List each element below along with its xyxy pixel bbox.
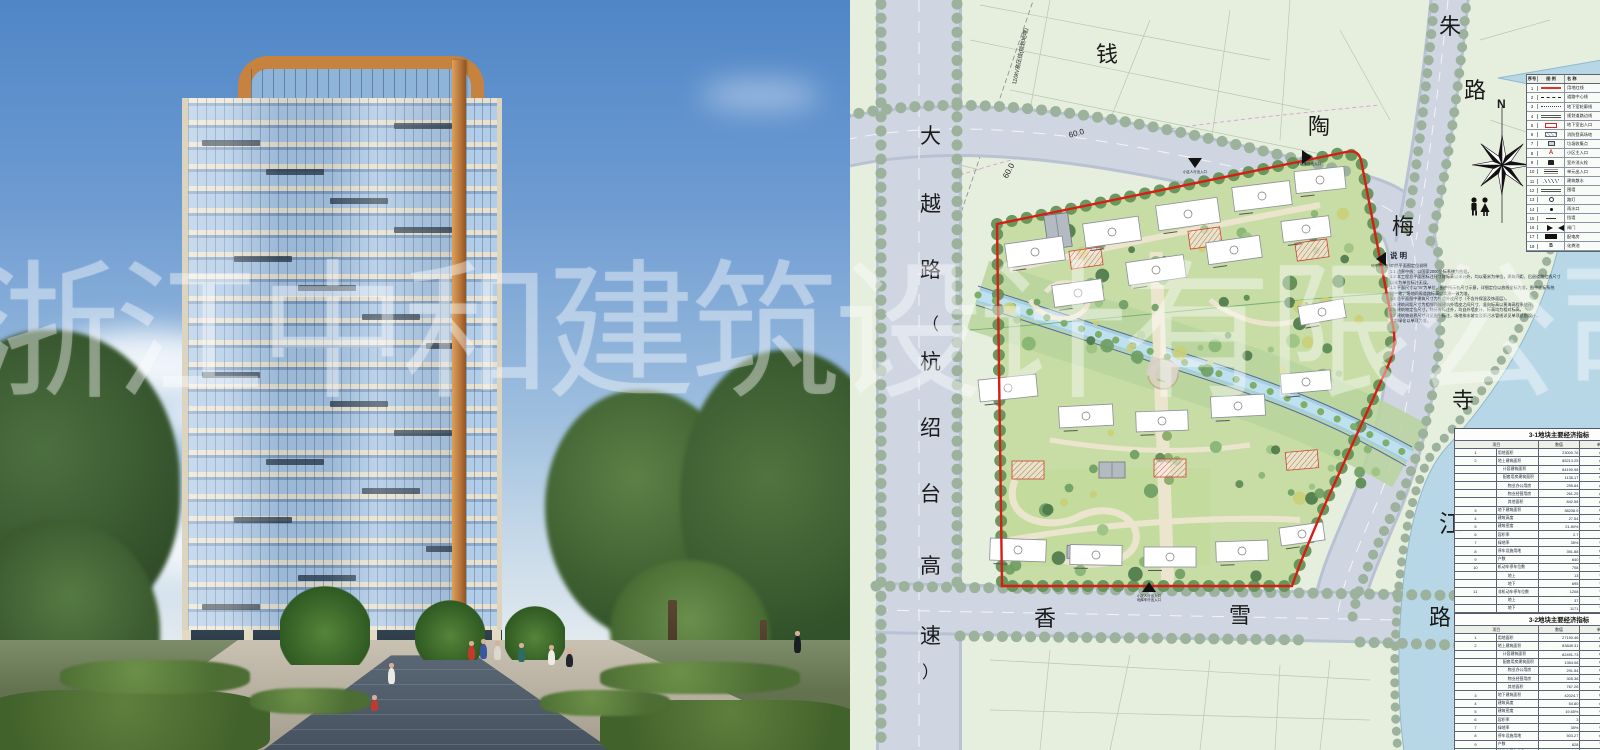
- legend-row-no: 4: [1527, 114, 1538, 119]
- econ-cell: 配套用房建筑面积: [1496, 658, 1538, 666]
- tree-dot: [1198, 345, 1204, 351]
- econ-table: 项目数值单位备注1用地面积23000.76㎡2地上建筑面积85213.25㎡其中…: [1454, 440, 1600, 613]
- econ-cell: 37: [1538, 596, 1580, 604]
- econ-row: 11非机动车停车位数1208个: [1455, 588, 1600, 596]
- tree-dot: [1130, 450, 1140, 460]
- econ-table-title: 3-1地块主要经济指标: [1454, 428, 1600, 440]
- note-line: 二期绿化以单项为准。: [1390, 318, 1600, 324]
- econ-row: 6容积率2.7: [1455, 531, 1600, 539]
- econ-cell: 建筑高度: [1496, 699, 1538, 707]
- tree-dot: [1060, 498, 1068, 506]
- legend-row-no: 7: [1527, 141, 1538, 146]
- econ-cell: 个: [1580, 580, 1600, 588]
- econ-cell: 3: [1455, 506, 1497, 514]
- tree-dot: [1337, 208, 1349, 220]
- econ-cell: 3: [1538, 716, 1580, 724]
- econ-cell: 停车设施用地: [1496, 547, 1538, 555]
- legend-row-no: 2: [1527, 95, 1538, 100]
- legend-header: 序号 图 例 名 称: [1527, 75, 1600, 84]
- econ-cell: [1455, 572, 1497, 580]
- econ-cell: 2: [1455, 642, 1497, 650]
- balcony-accent: [394, 227, 452, 233]
- econ-cell: 842.58: [1538, 498, 1580, 506]
- legend-symbol-glyph: [1541, 106, 1561, 107]
- econ-row: 物业经营用房261.25㎡物业经营用房不少于千分: [1455, 490, 1600, 498]
- legend-row: 13路灯: [1527, 196, 1600, 205]
- fire-lane-hatch: [1012, 461, 1044, 479]
- econ-cell: 1171: [1538, 604, 1580, 612]
- tree-dot: [1086, 336, 1095, 345]
- balcony-accent: [330, 401, 388, 407]
- legend-row-no: 16: [1527, 225, 1538, 230]
- legend-symbol-glyph: [1549, 197, 1554, 202]
- hedge: [600, 662, 800, 694]
- econ-cell: [1455, 580, 1497, 588]
- econ-row: 计容建筑面积84190.98㎡相применя配套建筑面积: [1455, 465, 1600, 473]
- screenshot-root: 大越路（杭绍台高速）钱陶梅寺朱路香雪路江60.060.0110kV高压线(规划地…: [0, 0, 1600, 750]
- person: [468, 646, 475, 660]
- econ-cell: 个: [1580, 572, 1600, 580]
- legend-row: 16闸门: [1527, 223, 1600, 232]
- econ-cell: ㎡: [1580, 449, 1600, 457]
- econ-cell: [1455, 490, 1497, 498]
- legend-row: 8A小区主入口: [1527, 149, 1600, 158]
- fire-lane-hatch: [1285, 450, 1318, 471]
- legend-row: 15挡墙: [1527, 214, 1600, 223]
- econ-cell: ㎡: [1580, 658, 1600, 666]
- tree-dot: [1201, 364, 1214, 377]
- econ-cell: [1455, 481, 1497, 489]
- legend-row-no: 13: [1527, 197, 1538, 202]
- econ-row: 10机动车停车位数708个: [1455, 563, 1600, 571]
- econ-cell: %: [1580, 707, 1600, 715]
- building-footprint: [1144, 547, 1196, 571]
- econ-cell: 27190.46: [1538, 634, 1580, 642]
- legend-row: 3地下室轮廓线: [1527, 103, 1600, 112]
- hedge: [540, 690, 670, 716]
- econ-cell: ㎡: [1580, 498, 1600, 506]
- fire-lane-hatch: [1154, 459, 1186, 477]
- legend-row: 11建筑散水: [1527, 177, 1600, 186]
- tree-dot: [1286, 334, 1300, 348]
- econ-cell: 其他面积: [1496, 498, 1538, 506]
- econ-cell: 个: [1580, 596, 1600, 604]
- tree-dot: [1119, 300, 1129, 310]
- econ-cell: [1580, 716, 1600, 724]
- econ-row: 2地上建筑面积83849.31㎡其中包含物业用房及开闭所等: [1455, 642, 1600, 650]
- legend-col-name: 名 称: [1565, 76, 1600, 82]
- legend-row-name: 建筑散水: [1565, 178, 1600, 184]
- legend-row-name: 小区主入口: [1565, 150, 1600, 156]
- legend-row: 12围墙: [1527, 186, 1600, 195]
- econ-row: 9户数828个: [1455, 740, 1600, 748]
- econ-cell: ㎡: [1580, 650, 1600, 658]
- legend-row-name: 地下室轮廓线: [1565, 104, 1600, 110]
- econ-cell: 1208: [1538, 588, 1580, 596]
- econ-cell: 27.54: [1538, 514, 1580, 522]
- legend-row-no: 9: [1527, 160, 1538, 165]
- econ-cell: 地下: [1496, 580, 1538, 588]
- legend-symbol-bin: [1538, 158, 1565, 166]
- econ-cell: 7: [1455, 724, 1497, 732]
- balcony-accent: [298, 575, 356, 581]
- econ-cell: 295.84: [1538, 481, 1580, 489]
- tree-dot: [1097, 524, 1108, 535]
- legend-symbol-circ: [1538, 196, 1565, 204]
- legend-row: 7垃圾收集点: [1527, 140, 1600, 149]
- tree-dot: [1344, 243, 1354, 253]
- person: [566, 654, 573, 667]
- legend-row-no: 17: [1527, 234, 1538, 239]
- person: [548, 650, 555, 665]
- tree-dot: [1175, 569, 1185, 579]
- econ-row: 物业办公用房295.84㎡物业管理用房不少于千分: [1455, 481, 1600, 489]
- econ-cell: 23000.76: [1538, 449, 1580, 457]
- econ-cell: 8: [1455, 547, 1497, 555]
- econ-cell: 非机动车停车位数: [1496, 588, 1538, 596]
- legend-row-name: 雨水口: [1565, 206, 1600, 212]
- econ-cell: 用地面积: [1496, 634, 1538, 642]
- econ-col-header: 数值: [1538, 441, 1580, 449]
- legend-symbol-hatch: [1538, 130, 1565, 138]
- econ-cell: 8: [1455, 732, 1497, 740]
- legend-symbol-zig: [1538, 177, 1565, 185]
- legend-row-no: 6: [1527, 132, 1538, 137]
- tree-dot: [1258, 472, 1265, 479]
- legend-symbol-glyph: [1541, 115, 1561, 118]
- econ-row: 物业经营用房305.38㎡物业经营用房不少于千分: [1455, 675, 1600, 683]
- tree-dot: [1209, 339, 1222, 352]
- legend-row: 6消防登高场地: [1527, 130, 1600, 139]
- legend-row-name: 垃圾收集点: [1565, 141, 1600, 147]
- tree-dot: [1225, 332, 1232, 339]
- econ-cell: [1580, 531, 1600, 539]
- tower-facade-right: [466, 98, 502, 630]
- econ-cell: 82491.73: [1538, 650, 1580, 658]
- econ-cell: 物业经营用房: [1496, 675, 1538, 683]
- lawn: [0, 690, 270, 750]
- econ-cell: 828: [1538, 740, 1580, 748]
- legend-row-name: 地下室出入口: [1565, 122, 1600, 128]
- balcony-accent: [202, 372, 260, 378]
- building-rect: [1216, 540, 1269, 562]
- econ-cell: [1455, 596, 1497, 604]
- legend-row: 18B化粪池: [1527, 242, 1600, 251]
- legend-row-no: 3: [1527, 104, 1538, 109]
- econ-cell: ㎡: [1580, 481, 1600, 489]
- planter: [1162, 431, 1172, 441]
- legend-symbol-glyph: A: [1549, 150, 1553, 156]
- legend-symbol-glyph: [1545, 123, 1557, 128]
- tree-dot: [1003, 302, 1015, 314]
- econ-cell: 708: [1538, 563, 1580, 571]
- econ-row: 物业办公用房291.54㎡物业管理用房不少于千分: [1455, 666, 1600, 674]
- fire-lane-hatch: [1069, 247, 1103, 269]
- utility-building: [1099, 462, 1125, 478]
- legend-symbol-glyph: [1546, 218, 1556, 219]
- tree-dot: [1302, 336, 1314, 348]
- tree-dot: [1108, 430, 1115, 437]
- legend-row-name: 化粪池: [1565, 243, 1600, 249]
- legend-symbol-dbl: [1538, 112, 1565, 120]
- econ-cell: 6: [1455, 716, 1497, 724]
- legend-row-name: 用地红线: [1565, 85, 1600, 91]
- tree-dot: [1144, 484, 1158, 498]
- tree-dot: [1100, 339, 1114, 353]
- legend-symbol-dashdot: [1538, 93, 1565, 101]
- building-rect: [1280, 370, 1332, 394]
- econ-row: 配套用房建筑面积1135.17㎡: [1455, 473, 1600, 481]
- econ-cell: 7: [1455, 539, 1497, 547]
- tree-dot: [1090, 491, 1097, 498]
- econ-row: 8停车设施用地503.27㎡地上建筑面积: [1455, 732, 1600, 740]
- econ-cell: [1455, 604, 1497, 612]
- tree-dot: [1334, 449, 1341, 456]
- legend-row: 10单元出入口: [1527, 168, 1600, 177]
- tree-dot: [1152, 304, 1159, 311]
- econ-cell: 695: [1538, 580, 1580, 588]
- econ-row: 5建筑密度21.80%%: [1455, 522, 1600, 530]
- legend-symbol-glyph: [1541, 97, 1561, 98]
- legend-symbol-glyph: [1548, 160, 1554, 166]
- legend-symbol-glyph: [1544, 169, 1558, 174]
- person: [794, 636, 801, 653]
- econ-cell: 1: [1455, 449, 1497, 457]
- tree-dot: [1268, 347, 1274, 353]
- econ-cell: 个: [1580, 740, 1600, 748]
- person: [480, 644, 487, 659]
- econ-cell: ㎡: [1580, 675, 1600, 683]
- econ-col-header: 单位: [1580, 441, 1600, 449]
- tree-dot: [1210, 441, 1222, 453]
- tree-dot: [1250, 570, 1261, 581]
- econ-cell: 个: [1580, 604, 1600, 612]
- balcony-accent: [394, 430, 452, 436]
- legend-symbol-glyph: A: [1538, 149, 1565, 157]
- legend-symbol-glyph: [1545, 234, 1557, 239]
- balcony-accent: [202, 140, 260, 146]
- econ-cell: 42024.7: [1538, 691, 1580, 699]
- legend-row-no: 11: [1527, 179, 1538, 184]
- tree-dot: [1244, 295, 1250, 301]
- tree-dot: [1219, 297, 1229, 307]
- econ-cell: 其他面积: [1496, 683, 1538, 691]
- econ-cell: 地下建筑面积: [1496, 691, 1538, 699]
- econ-row: 7绿地率35%%: [1455, 724, 1600, 732]
- econ-cell: 1354.08: [1538, 658, 1580, 666]
- tree-dot: [1052, 551, 1066, 565]
- econ-row: 地下695个: [1455, 580, 1600, 588]
- econ-cell: ㎡: [1580, 683, 1600, 691]
- econ-col-header: 项目: [1455, 625, 1539, 633]
- tree-dot: [1271, 445, 1280, 454]
- tree-dot: [1128, 246, 1135, 253]
- legend-row-name: 道路中心线: [1565, 94, 1600, 100]
- econ-cell: 3: [1455, 691, 1497, 699]
- econ-cell: %: [1580, 522, 1600, 530]
- econ-cell: [1455, 666, 1497, 674]
- econ-row: 1用地面积27190.46㎡: [1455, 634, 1600, 642]
- legend-symbol-steps: [1538, 168, 1565, 176]
- building-rect: [1070, 545, 1122, 566]
- tree-dot: [1131, 351, 1144, 364]
- legend-row-no: 14: [1527, 207, 1538, 212]
- legend-row-name: 挡墙: [1565, 215, 1600, 221]
- tree-dot: [1311, 210, 1318, 217]
- building-rect: [1136, 410, 1189, 432]
- legend-symbol-dbl: [1538, 186, 1565, 194]
- econ-row: 9户数640个: [1455, 555, 1600, 563]
- tree-dot: [1235, 480, 1243, 488]
- fire-lane-hatch: [1295, 239, 1329, 261]
- building-rect: [1294, 166, 1346, 193]
- tree-dot: [1328, 465, 1335, 472]
- econ-row: 其他面积842.58㎡活动室 40.35㎡ 配电房、开关房 569.07㎡ 垃圾…: [1455, 498, 1600, 506]
- legend-symbol-glyph: [1541, 189, 1561, 192]
- econ-cell: 建筑密度: [1496, 522, 1538, 530]
- econ-cell: ㎡: [1580, 490, 1600, 498]
- econ-cell: 个: [1580, 563, 1600, 571]
- econ-cell: 建筑密度: [1496, 707, 1538, 715]
- legend-row-name: 路灯: [1565, 197, 1600, 203]
- legend-symbol-box: [1538, 140, 1565, 148]
- econ-cell: 地下建筑面积: [1496, 506, 1538, 514]
- person: [388, 668, 395, 684]
- legend-row-name: 闸门: [1565, 225, 1600, 231]
- balcony-accent: [362, 488, 420, 494]
- building-rect: [990, 538, 1047, 562]
- econ-cell: ㎡: [1580, 666, 1600, 674]
- tree-dot: [1364, 445, 1372, 453]
- econ-cell: 5: [1455, 707, 1497, 715]
- legend-row: 1用地红线: [1527, 84, 1600, 93]
- econ-table-title: 3-2地块主要经济指标: [1454, 613, 1600, 625]
- econ-cell: ㎡: [1580, 691, 1600, 699]
- econ-row: 其他面积767.26㎡活动室 50.05㎡ 配电房、开关房 674.4㎡ 垃圾收…: [1455, 683, 1600, 691]
- tree-dot: [1282, 276, 1297, 291]
- econ-cell: 640: [1538, 555, 1580, 563]
- econ-cell: 建筑高度: [1496, 514, 1538, 522]
- tree-dot: [1022, 337, 1036, 351]
- econ-cell: 9: [1455, 555, 1497, 563]
- econ-cell: %: [1580, 539, 1600, 547]
- econ-cell: 4: [1455, 514, 1497, 522]
- econ-cell: 绿地率: [1496, 539, 1538, 547]
- legend-row: 2道路中心线: [1527, 93, 1600, 102]
- econ-row: 地上37个: [1455, 596, 1600, 604]
- legend-row-no: 10: [1527, 169, 1538, 174]
- econ-cell: 9: [1455, 740, 1497, 748]
- tree-dot: [1340, 255, 1349, 264]
- tree-dot: [1315, 488, 1325, 498]
- econ-cell: 配套用房建筑面积: [1496, 473, 1538, 481]
- legend-symbol-glyph: [1541, 87, 1561, 89]
- balcony-accent: [394, 123, 452, 129]
- econ-cell: 391.88: [1538, 547, 1580, 555]
- balcony-accent: [298, 285, 356, 291]
- tree-dot: [1093, 320, 1099, 326]
- econ-row: 8停车设施用地391.88㎡地上建筑面积: [1455, 547, 1600, 555]
- econ-cell: 计容建筑面积: [1496, 465, 1538, 473]
- econ-cell: [1455, 650, 1497, 658]
- balcony-accent: [202, 604, 260, 610]
- econ-cell: ㎡: [1580, 506, 1600, 514]
- person: [494, 646, 501, 660]
- econ-cell: 13: [1538, 572, 1580, 580]
- econ-row: 地下1171个: [1455, 604, 1600, 612]
- building-rect: [1058, 404, 1113, 428]
- econ-cell: 个: [1580, 588, 1600, 596]
- econ-row: 地上13个: [1455, 572, 1600, 580]
- econ-cell: ㎡: [1580, 634, 1600, 642]
- balcony-accent: [266, 169, 324, 175]
- econ-cell: 物业办公用房: [1496, 666, 1538, 674]
- econ-cell: 11: [1455, 588, 1497, 596]
- tree-dot: [1332, 275, 1345, 288]
- legend-symbol-black: [1538, 233, 1565, 241]
- legend-col-no: 序号: [1527, 76, 1538, 82]
- econ-cell: m: [1580, 514, 1600, 522]
- econ-cell: 21.80%: [1538, 522, 1580, 530]
- econ-cell: 84190.98: [1538, 465, 1580, 473]
- tree-dot: [1065, 484, 1074, 493]
- econ-cell: 35%: [1538, 539, 1580, 547]
- balcony-accent: [234, 256, 292, 262]
- econ-row: 5建筑密度19.65%%: [1455, 707, 1600, 715]
- tree-dot: [1336, 370, 1343, 377]
- legend-row-name: 配电房: [1565, 234, 1600, 240]
- tower-facade: [182, 98, 458, 630]
- econ-cell: 54.80: [1538, 699, 1580, 707]
- econ-col-header: 单位: [1580, 625, 1600, 633]
- person: [518, 648, 525, 662]
- econ-cell: [1455, 473, 1497, 481]
- econ-row: 2地上建筑面积85213.25㎡其中包含物业用房及开闭所等: [1455, 457, 1600, 465]
- legend-row-name: 单元出入口: [1565, 169, 1600, 175]
- building-rect: [1210, 394, 1265, 418]
- legend-row-no: 12: [1527, 188, 1538, 193]
- econ-cell: 4: [1455, 699, 1497, 707]
- econ-cell: 2.7: [1538, 531, 1580, 539]
- legend-symbol-glyph: [1545, 132, 1557, 137]
- legend-row-no: 5: [1527, 123, 1538, 128]
- tower-orange-fin: [452, 60, 466, 652]
- econ-cell: 503.27: [1538, 732, 1580, 740]
- legend-symbol-bow: [1538, 223, 1565, 231]
- econ-cell: 35%: [1538, 724, 1580, 732]
- econ-cell: 户数: [1496, 555, 1538, 563]
- econ-cell: 767.26: [1538, 683, 1580, 691]
- econ-cell: m: [1580, 699, 1600, 707]
- tree-dot: [1354, 467, 1365, 478]
- econ-row: 3地下建筑面积42024.7㎡: [1455, 691, 1600, 699]
- econ-cell: 地上建筑面积: [1496, 642, 1538, 650]
- balcony-accent: [266, 459, 324, 465]
- tree-dot: [1034, 299, 1041, 306]
- building-render-photo: [0, 0, 850, 750]
- tree-dot: [1354, 315, 1363, 324]
- legend-symbol-redrect: [1538, 121, 1565, 129]
- legend-symbol-glyph: [1550, 208, 1553, 211]
- tree-dot: [1279, 366, 1287, 374]
- tree-dot: [1013, 316, 1021, 324]
- legend-row-no: 18: [1527, 244, 1538, 249]
- econ-cell: [1455, 498, 1497, 506]
- legend-symbol-glyph: [1547, 225, 1556, 231]
- legend-row: 17配电房: [1527, 233, 1600, 242]
- legend-symbol-glyph: [1543, 179, 1559, 183]
- econ-cell: 1: [1455, 634, 1497, 642]
